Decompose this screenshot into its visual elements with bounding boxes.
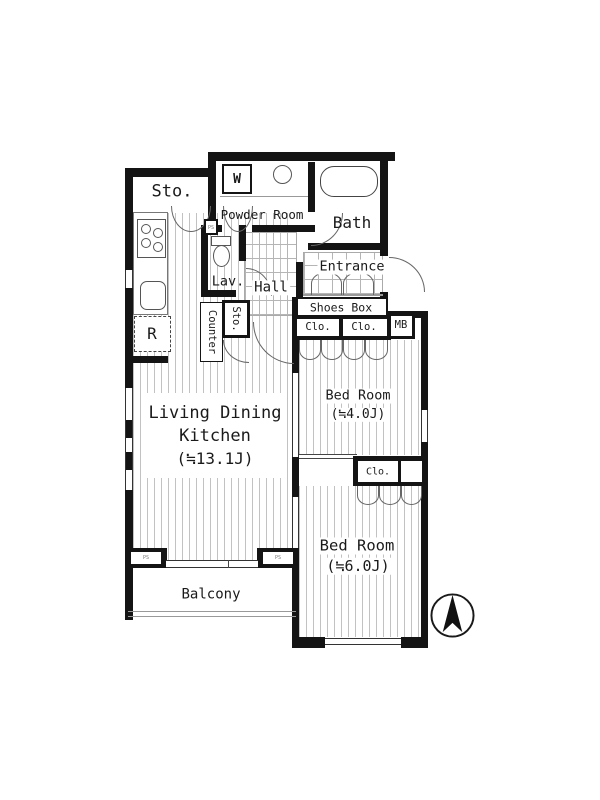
wall-balcony-left [125, 568, 133, 620]
powder-counter-line [220, 196, 308, 197]
washbasin-icon [273, 165, 292, 184]
closet-a-label: Clo. [303, 322, 332, 334]
ldk-label-line2: Kitchen [179, 426, 251, 446]
meter-box-label: MB [393, 320, 410, 332]
wall-storage-top [125, 168, 216, 177]
balcony-rail-line-a [128, 611, 296, 612]
bedroom2-size-label: (≒6.0J) [324, 558, 391, 575]
wall-lav-bottom [201, 290, 236, 297]
counter-label: Counter [206, 310, 218, 354]
entrance-door-arc [389, 257, 425, 292]
burner-icon [141, 238, 151, 248]
bedroom-divider-line-a [299, 454, 357, 455]
storage-room-label: Sto. [150, 183, 195, 202]
bedroom1-label: Bed Room [323, 389, 392, 404]
north-compass-icon [429, 592, 476, 639]
ldk-label-line1: Living Dining [148, 403, 281, 423]
window-kitchen [125, 270, 133, 288]
wall-mid-center [292, 457, 299, 497]
wall-left-lower [125, 490, 133, 550]
pipe-space-top: PS [204, 219, 218, 235]
balcony-door-meeting-stile [228, 560, 229, 568]
window-mullion-a [126, 420, 132, 438]
sliding-door-bedroom1 [292, 373, 299, 457]
shoes-box-label: Shoes Box [308, 302, 374, 315]
burner-icon [153, 242, 163, 252]
closet-fold-door-arc [343, 340, 365, 360]
pipe-space-right: PS [263, 552, 293, 564]
floor-plan: W R Counter Sto. Shoes Box MB Clo. Clo. [0, 0, 600, 800]
balcony-label: Balcony [179, 587, 242, 602]
entrance-closet-arc-left [311, 272, 342, 295]
wall-lav-left [201, 225, 208, 297]
bath-label: Bath [331, 214, 374, 232]
lav-label: Lav. [210, 275, 247, 290]
storage-small-label: Sto. [230, 306, 242, 331]
window-mullion-b [126, 452, 132, 470]
wall-right-upper [380, 152, 388, 256]
window-living [125, 388, 133, 490]
bedroom2-label: Bed Room [318, 537, 397, 554]
closet-fold-door-arc [379, 486, 401, 505]
refrigerator-label: R [145, 325, 159, 343]
entrance-label: Entrance [317, 260, 386, 275]
wall-powder-bottom-b [252, 225, 315, 232]
powder-room-label: Powder Room [219, 208, 306, 222]
closet-fold-door-arc [321, 340, 343, 360]
balcony-sliding-door [166, 560, 258, 568]
ldk-label-plate: Living Dining Kitchen (≒13.1J) [146, 393, 284, 478]
toilet-bowl-icon [213, 245, 230, 267]
window-bedroom2 [325, 638, 401, 645]
wall-bottom-right-stub [401, 637, 428, 648]
closet-c-label: Clo. [364, 467, 392, 478]
closet-fold-door-arc [365, 340, 388, 360]
wall-left-upper [125, 168, 133, 270]
closet-fold-door-arc [401, 486, 422, 505]
wall-kitchen-counter-end [133, 356, 168, 363]
pipe-space-left: PS [131, 552, 161, 564]
wall-right-bed1 [421, 315, 428, 410]
bedroom1-size-label: (≒4.0J) [329, 408, 388, 422]
wall-top [215, 152, 395, 161]
wall-bath-left-a [308, 162, 315, 212]
closet-fold-door-arc [299, 340, 321, 360]
ldk-size-label: (≒13.1J) [176, 449, 253, 468]
kitchen-sink-icon [140, 281, 166, 310]
washing-machine-label: W [231, 173, 243, 187]
window-bedroom1 [421, 410, 428, 442]
burner-icon [141, 224, 151, 234]
wall-left-mid [125, 288, 133, 388]
bedroom-divider-line-b [299, 458, 357, 459]
balcony-rail-line-b [128, 616, 296, 617]
burner-icon [153, 228, 163, 238]
bathtub-icon [320, 166, 378, 197]
stove-icon [137, 219, 166, 258]
entrance-closet-arc-right [343, 272, 374, 295]
closet-b-label: Clo. [349, 322, 378, 334]
closet-side-box [401, 461, 422, 482]
hall-label: Hall [252, 280, 290, 295]
closet-fold-door-arc [357, 486, 379, 505]
wall-hall-entrance [296, 262, 303, 298]
sliding-door-bedroom2 [292, 497, 299, 552]
